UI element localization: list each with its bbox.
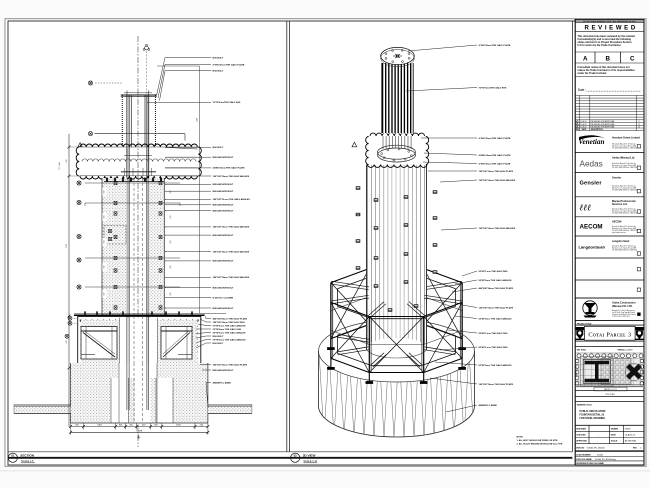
svg-text:ACAD NUMBER: ACAD NUMBER (576, 453, 591, 456)
svg-text:SCALE 1:10: SCALE 1:10 (303, 460, 317, 463)
svg-text:Ø 500 R.C COLUMN: Ø 500 R.C COLUMN (213, 298, 234, 300)
svg-text:ℓℓℓ: ℓℓℓ (580, 203, 592, 213)
svg-text:400*200*16mm THK GALV PLATE: 400*200*16mm THK GALV PLATE (479, 287, 514, 290)
svg-text:www.sands.com.mo: www.sands.com.mo (612, 232, 626, 234)
svg-text:76*76*6mmTHK GALV SHS: 76*76*6mmTHK GALV SHS (213, 101, 241, 104)
svg-text:50*50*5 mm THK GALV SHS: 50*50*5 mm THK GALV SHS (479, 346, 509, 349)
svg-text:76*76*6mm THK GALV SHS: 76*76*6mm THK GALV SHS (213, 328, 242, 331)
svg-text:M20 ANCHOR BOLT: M20 ANCHOR BOLT (213, 234, 234, 237)
svg-text:Tel: (853) 2888 3300 Fax: 288: Tel: (853) 2888 3300 Fax: 2888 3311 (612, 148, 637, 150)
svg-text:M20 ANCHOR BOLT: M20 ANCHOR BOLT (213, 307, 234, 310)
svg-text:120*120*12mm THK GALV PLATE: 120*120*12mm THK GALV PLATE (479, 306, 514, 309)
svg-text:500: 500 (104, 266, 106, 269)
svg-text:under the Trade Contract.: under the Trade Contract. (577, 72, 607, 75)
svg-text:120*120*12mm THK GALV PLATE: 120*120*12mm THK GALV PLATE (479, 170, 514, 173)
svg-text:400MM R.C BASE: 400MM R.C BASE (479, 404, 498, 407)
svg-text:KEY PLAN: KEY PLAN (577, 348, 587, 351)
svg-text:FOUNTAIN DETAIL 25: FOUNTAIN DETAIL 25 (580, 413, 605, 416)
svg-text:DATE: DATE (611, 434, 617, 437)
svg-text:10-8-15: 10-8-15 (580, 124, 586, 126)
svg-text:4 END 90mmTHK GALV PLATE: 4 END 90mmTHK GALV PLATE (479, 154, 512, 157)
svg-text:DWG NO: DWG NO (576, 447, 585, 449)
svg-text:Tel: (853) 2888 3300 Fax: 288: Tel: (853) 2888 3300 Fax: 2888 3311 (612, 230, 637, 232)
svg-text:DESCRIPTION: DESCRIPTION (591, 129, 603, 131)
svg-text:SECTION: SECTION (20, 454, 35, 458)
svg-text:CHECKED: CHECKED (576, 435, 586, 437)
svg-text:M16 BOLT: M16 BOLT (213, 70, 224, 72)
svg-text:50*50*5mm THK GALV ANGLES: 50*50*5mm THK GALV ANGLES (479, 317, 512, 320)
svg-text:120*120*12 mm THK GALV ANGLES: 120*120*12 mm THK GALV ANGLES (213, 198, 251, 201)
svg-text:T: 2875 0119 F: 2875 0411: T: 2875 0119 F: 2875 0411 (612, 316, 630, 318)
svg-text:120*120*12mm THK GALV ANGLES: 120*120*12mm THK GALV ANGLES (479, 227, 516, 230)
svg-text:500: 500 (104, 191, 106, 194)
svg-text:RE-ISSUED FOR APPROVAL: RE-ISSUED FOR APPROVAL (591, 120, 615, 123)
svg-text:M20 ANCHOR BOLT: M20 ANCHOR BOLT (213, 204, 234, 207)
svg-text:M16 BOLT: M16 BOLT (213, 57, 224, 59)
svg-text:C: C (630, 56, 635, 63)
svg-text:M16 BOLT: M16 BOLT (213, 147, 224, 149)
svg-text:2. ALL FILLET WELDED SHOULD BE: 2. ALL FILLET WELDED SHOULD BE 6mm THK. (517, 442, 564, 445)
svg-text:500: 500 (104, 241, 106, 244)
svg-text:Tel: (853) 2888 3300 Fax: 288: Tel: (853) 2888 3300 Fax: 2888 3311 (612, 190, 637, 192)
svg-text:DWG FILE NAME: DWG FILE NAME (576, 458, 592, 461)
svg-text:120*120*12mm THK GALV ANGLES: 120*120*12mm THK GALV ANGLES (213, 276, 250, 279)
svg-text:Date :: Date : (578, 88, 587, 92)
svg-text:1. ALL BOLT SHOULD BE FIXING O: 1. ALL BOLT SHOULD BE FIXING ON SITE. (517, 439, 559, 442)
svg-text:REFERENCE DWG FILE NAME: REFERENCE DWG FILE NAME (576, 462, 604, 465)
svg-text:02: 02 (294, 453, 298, 457)
svg-text:3D VIEW: 3D VIEW (303, 454, 316, 458)
svg-text:A: A (583, 56, 588, 63)
svg-text:120*120*12mm THK GALV PLATE: 120*120*12mm THK GALV PLATE (479, 383, 514, 386)
svg-text:Aedas (Macau) Ltd.: Aedas (Macau) Ltd. (612, 156, 635, 159)
svg-text:01: 01 (11, 453, 15, 457)
svg-text:M16 BOLT: M16 BOLT (213, 343, 224, 345)
svg-text:SCALE 1:5: SCALE 1:5 (21, 460, 34, 463)
svg-text:DESIGNED: DESIGNED (576, 429, 587, 431)
svg-text:500: 500 (170, 293, 172, 296)
svg-text:M20 ANCHOR BOLT: M20 ANCHOR BOLT (213, 369, 234, 372)
svg-text:M20 ANCHOR BOLT: M20 ANCHOR BOLT (213, 190, 234, 193)
svg-text:4 THK 90mmTHK GALV PLATE: 4 THK 90mmTHK GALV PLATE (479, 44, 511, 47)
svg-text:M16 BOLT: M16 BOLT (213, 336, 224, 338)
svg-text:M20 ANCHOR BOLT: M20 ANCHOR BOLT (213, 183, 234, 186)
svg-text:5150B: 5150B (597, 454, 603, 456)
svg-text:300: 300 (66, 160, 68, 163)
svg-text:Gensler: Gensler (612, 177, 621, 180)
svg-text:4 END 90mmTHK GALV PLATE: 4 END 90mmTHK GALV PLATE (213, 167, 246, 170)
svg-text:Services Ltd.: Services Ltd. (612, 203, 628, 206)
svg-text:120*120*12mm THK GALV ANGLES: 120*120*12mm THK GALV ANGLES (479, 179, 516, 182)
svg-text:R E V I E W E D: R E V I E W E D (585, 26, 636, 32)
svg-text:SCALE: SCALE (611, 440, 618, 443)
svg-text:120*120*12mm THK GALV ANGLES: 120*120*12mm THK GALV ANGLES (213, 226, 250, 229)
svg-text:76*76*6mmTHK GALV SHS: 76*76*6mmTHK GALV SHS (479, 86, 507, 89)
svg-text:(Macau) CO. LTD.: (Macau) CO. LTD. (612, 305, 633, 308)
svg-text:FOR STEEL DRAWING: FOR STEEL DRAWING (580, 417, 606, 420)
svg-text:FFL +8.00: FFL +8.00 (59, 162, 61, 169)
svg-text:M20 ANCHOR BOLT: M20 ANCHOR BOLT (213, 209, 234, 212)
svg-text:4 THK 90mmTHK GALV PLATE: 4 THK 90mmTHK GALV PLATE (479, 162, 511, 165)
svg-text:76*76*6mm THK GALV ANGLES: 76*76*6mm THK GALV ANGLES (213, 331, 246, 334)
svg-text:500: 500 (104, 293, 106, 296)
svg-text:500: 500 (170, 241, 172, 244)
svg-text:LWKD: LWKD (625, 429, 631, 431)
svg-text:M20 ANCHOR BOLT: M20 ANCHOR BOLT (213, 156, 234, 159)
svg-text:Venetian Orient Limited: Venetian Orient Limited (612, 136, 640, 139)
svg-text:APPROVED: APPROVED (576, 440, 587, 443)
svg-text:B: B (605, 56, 610, 63)
svg-text:RE-ISSUED FOR APPROVAL: RE-ISSUED FOR APPROVAL (591, 123, 615, 126)
svg-text:Tel: (853) 2888 3300 Fax: 288: Tel: (853) 2888 3300 Fax: 2888 3311 (612, 250, 637, 252)
svg-text:10-8-15: 10-8-15 (580, 121, 586, 123)
svg-text:50*50*5mm THK GALV ANGLES: 50*50*5mm THK GALV ANGLES (479, 364, 512, 367)
svg-text:SITE PLAN: SITE PLAN (605, 393, 615, 396)
svg-text:50*50*5mm THK GALV ANGLES: 50*50*5mm THK GALV ANGLES (479, 279, 512, 282)
svg-text:Langdon Seah: Langdon Seah (612, 240, 630, 243)
svg-text:150*150*10mm THK GALV SHS: 150*150*10mm THK GALV SHS (213, 321, 246, 324)
svg-text:500: 500 (170, 266, 172, 269)
svg-text:4 THK 90mmTHK GALV PLATE: 4 THK 90mmTHK GALV PLATE (213, 63, 245, 66)
svg-text:AECOM: AECOM (612, 220, 621, 223)
svg-text:450*150*90mm THK GALV PLATE: 450*150*90mm THK GALV PLATE (213, 317, 248, 320)
svg-text:500: 500 (104, 216, 106, 219)
svg-text:5150B_PD_B5000: 5150B_PD_B5000 (587, 447, 606, 449)
svg-text:DRAWING TITLE: DRAWING TITLE (577, 403, 593, 406)
svg-text:1500: 1500 (196, 118, 198, 122)
svg-text:14-AUG-15: 14-AUG-15 (625, 434, 636, 437)
svg-text:50*50*5 mm THK GALV SHS: 50*50*5 mm THK GALV SHS (479, 270, 509, 273)
svg-text:AECOM: AECOM (580, 224, 603, 231)
svg-text:M20 ANCHOR BOLT: M20 ANCHOR BOLT (213, 260, 234, 263)
svg-text:4 THK 90mmTHK GALV PLATE: 4 THK 90mmTHK GALV PLATE (479, 137, 511, 140)
svg-text:150*150*10mm THK GALV PLATE: 150*150*10mm THK GALV PLATE (213, 363, 248, 366)
svg-text:120*120*12mm THK GALV ANGLES: 120*120*12mm THK GALV ANGLES (213, 250, 250, 253)
svg-text:PUBLIC CIRCULATION: PUBLIC CIRCULATION (580, 410, 606, 413)
svg-text:NOTE:: NOTE: (517, 437, 524, 439)
svg-text:76*76*6mm THK GALV ANGLES: 76*76*6mm THK GALV ANGLES (213, 324, 246, 327)
svg-text:Tel: (853) 2888 3300 Fax: 288: Tel: (853) 2888 3300 Fax: 2888 3311 (612, 213, 637, 215)
svg-text:DO NOT SCALE DRAWING. VERIFY A: DO NOT SCALE DRAWING. VERIFY ALL DIMENSI… (583, 20, 636, 23)
svg-text:Cᴏᴛᴀɪ Pᴀʀᴄᴇʟ 3: Cᴏᴛᴀɪ Pᴀʀᴄᴇʟ 3 (588, 332, 631, 339)
svg-text:Venetian: Venetian (579, 138, 605, 146)
svg-text:PARCEL 1, LOT 2: PARCEL 1, LOT 2 (618, 348, 633, 351)
svg-text:10828: 10828 (136, 430, 142, 432)
svg-text:AS SHOWN: AS SHOWN (625, 440, 637, 443)
svg-text:5.4 for action by the Trade Co: 5.4 for action by the Trade Contractor. (577, 44, 621, 47)
svg-text:Gensler: Gensler (580, 181, 603, 187)
svg-text:76*76*6mm THK GALV ANGLES: 76*76*6mm THK GALV ANGLES (213, 338, 246, 341)
svg-text:120*120*12mm THK GALV ANGLES: 120*120*12mm THK GALV ANGLES (213, 175, 250, 178)
svg-text:50*50*5 mm THK GALV SHS: 50*50*5 mm THK GALV SHS (479, 332, 509, 335)
svg-text:Tel: (853) 2888 3300 Fax: 288: Tel: (853) 2888 3300 Fax: 2888 3311 (612, 167, 637, 169)
svg-text:500: 500 (170, 216, 172, 219)
svg-text:LangdonSeah: LangdonSeah (579, 245, 606, 250)
svg-text:DRAWN: DRAWN (611, 428, 619, 431)
svg-text:500: 500 (66, 341, 68, 344)
svg-text:M20 ANCHOR BOLT: M20 ANCHOR BOLT (213, 286, 234, 289)
svg-text:400MM R.C BASE: 400MM R.C BASE (213, 381, 232, 384)
svg-text:2700: 2700 (66, 244, 68, 248)
svg-text:Aedas: Aedas (580, 160, 603, 169)
